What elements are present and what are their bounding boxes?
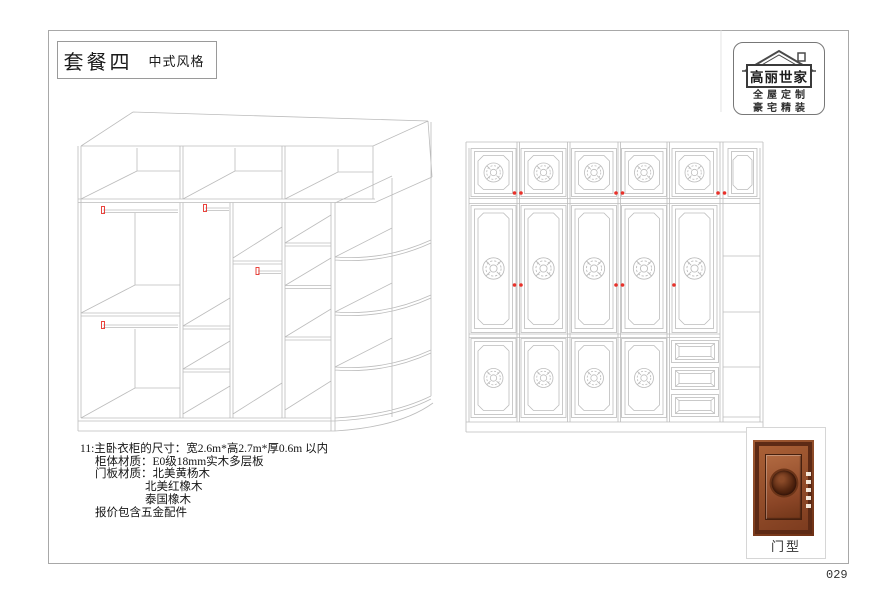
spec-line: 报价包含五金配件 [95,507,328,520]
door-sample-photo [753,440,814,536]
elevation-drawers [672,341,719,417]
spec-line: 北美红橡木 [145,481,328,494]
spec-line: 11:主卧衣柜的尺寸：宽2.6m*高2.7m*厚0.6m 以内 [80,443,328,456]
design-sheet: 套餐四 中式风格 高丽世家 全屋定制 豪宅精装 [0,0,880,597]
door-photo-watermark [806,472,811,512]
door-sample-medallion [771,470,796,495]
door-type-label: 门型 [747,536,825,555]
spec-line: 门板材质：北美黄杨木 [95,468,328,481]
spec-line: 柜体材质：E0级18mm实木多层板 [95,456,328,469]
elevation-middle-doors [471,206,717,333]
front-elevation-drawing [466,142,763,432]
interior-perspective-drawing [78,112,433,431]
elevation-top-doors [471,149,757,197]
door-sample-frame [755,442,812,534]
spec-line: 泰国橡木 [145,494,328,507]
door-type-cell: 门型 [746,427,826,559]
spec-text-block: 11:主卧衣柜的尺寸：宽2.6m*高2.7m*厚0.6m 以内 柜体材质：E0级… [80,443,328,519]
door-sample-panel [765,454,802,520]
elevation-bottom-doors [471,339,667,418]
page-number: 029 [826,568,848,582]
